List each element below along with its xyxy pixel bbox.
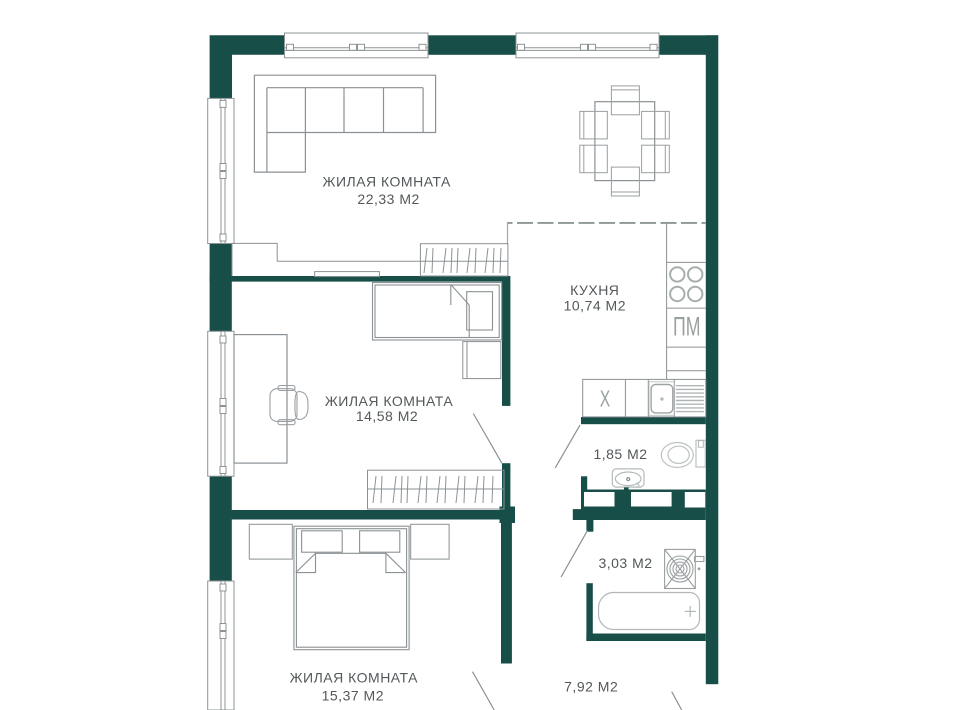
svg-text:ЖИЛАЯ КОМНАТА: ЖИЛАЯ КОМНАТА: [290, 670, 419, 686]
svg-text:14,58 М2: 14,58 М2: [356, 408, 418, 424]
svg-text:КУХНЯ: КУХНЯ: [570, 282, 619, 298]
svg-text:7,92 М2: 7,92 М2: [564, 678, 618, 694]
svg-text:ПМ: ПМ: [673, 311, 701, 341]
svg-text:ЖИЛАЯ КОМНАТА: ЖИЛАЯ КОМНАТА: [323, 174, 452, 190]
svg-text:X: X: [600, 386, 611, 412]
svg-text:ЖИЛАЯ КОМНАТА: ЖИЛАЯ КОМНАТА: [325, 393, 454, 409]
svg-text:1,85 М2: 1,85 М2: [593, 446, 647, 462]
svg-text:3,03 М2: 3,03 М2: [598, 555, 652, 571]
svg-text:22,33 М2: 22,33 М2: [357, 191, 419, 207]
svg-text:15,37 М2: 15,37 М2: [322, 688, 384, 704]
svg-text:10,74 М2: 10,74 М2: [564, 298, 626, 314]
